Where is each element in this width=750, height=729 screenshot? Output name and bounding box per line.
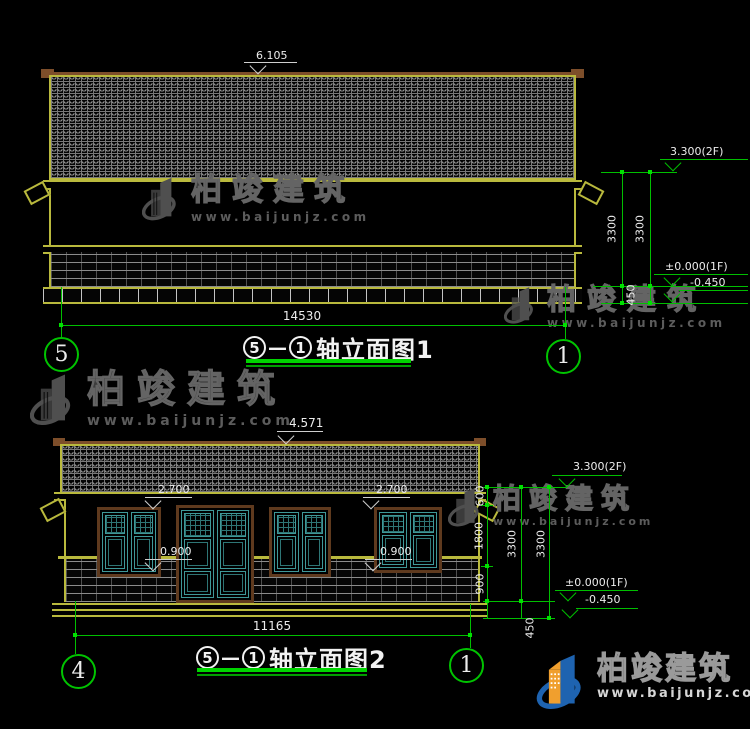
dim-tick xyxy=(648,170,652,174)
watermark-url: www.baijunjz.com xyxy=(493,515,653,528)
level-f2-2: 3.300(2F) xyxy=(573,460,626,473)
watermark-text: 柏竣建筑 www.baijunjz.com xyxy=(191,174,370,224)
brand-logo-icon xyxy=(30,370,80,434)
window-lattice xyxy=(305,515,324,534)
window-panel xyxy=(277,536,296,569)
dim-tick xyxy=(620,284,624,288)
level-sill-left: 0.900 xyxy=(160,545,192,558)
window-panel xyxy=(105,536,125,569)
brand-logo-icon xyxy=(142,174,184,228)
dim-height-upper-1: 3300 xyxy=(606,215,619,243)
level-f1-1: ±0.000(1F) xyxy=(665,260,728,273)
watermark-url: www.baijunjz.com xyxy=(191,210,370,224)
title-underline-2 xyxy=(197,668,367,672)
company-logo: 柏竣建筑 www.baijunjz.com xyxy=(536,652,750,716)
dim-tick xyxy=(73,633,77,637)
dim-tick xyxy=(519,599,523,603)
dim-extension xyxy=(565,287,566,339)
dim-height-b-2: 3300 xyxy=(535,530,548,558)
dim-height-lower-1: 3300 xyxy=(634,215,647,243)
title-axis-to-1: 1 xyxy=(289,336,312,359)
dim-window-height: 1800 xyxy=(473,522,486,550)
watermark-text: 柏竣建筑 www.baijunjz.com xyxy=(493,484,653,528)
plinth-steps-2 xyxy=(52,602,488,617)
dim-extension xyxy=(75,601,76,654)
axis-bubble-left-2: 4 xyxy=(61,654,96,689)
door-panel-lower xyxy=(220,571,247,595)
window-sash xyxy=(410,512,438,568)
title-axis-from-2: 5 xyxy=(196,646,219,669)
title-axis-from-1: 5 xyxy=(243,336,266,359)
dim-tick xyxy=(468,633,472,637)
title-underline-1 xyxy=(246,359,411,363)
window-lattice xyxy=(134,515,154,534)
level-lintel-left: 2.700 xyxy=(158,483,190,496)
level-ridge-1: 6.105 xyxy=(256,49,288,62)
dim-tick xyxy=(485,599,489,603)
dim-tick xyxy=(59,323,63,327)
window-lattice xyxy=(413,515,435,533)
level-line xyxy=(679,290,748,291)
dim-sill-height: 900 xyxy=(474,574,487,595)
title-underline-2b xyxy=(197,674,367,676)
level-lintel-right: 2.700 xyxy=(376,483,408,496)
dim-line-width-2 xyxy=(75,635,470,636)
watermark-brand: 柏竣建筑 xyxy=(493,484,653,513)
door-panel-upper xyxy=(220,539,247,569)
company-brand: 柏竣建筑 xyxy=(597,652,750,686)
window-panel xyxy=(413,535,435,565)
title-dash-2: — xyxy=(221,647,240,669)
window-panel xyxy=(305,536,324,569)
company-url: www.baijunjz.com xyxy=(597,686,750,701)
axis-bubble-right-2: 1 xyxy=(449,648,484,683)
title-underline-1b xyxy=(246,365,411,367)
dim-tick xyxy=(620,170,624,174)
dim-line xyxy=(483,487,567,488)
dim-plinth-1: 450 xyxy=(625,285,638,306)
level-f1-2: ±0.000(1F) xyxy=(565,576,628,589)
dim-extension xyxy=(470,604,471,648)
dim-height-a-2: 3300 xyxy=(506,530,519,558)
level-ridge-2: 4.571 xyxy=(289,416,323,430)
watermark-text: 柏竣建筑 www.baijunjz.com xyxy=(87,370,294,429)
window-sash xyxy=(302,512,327,572)
axis-bubble-right-1: 1 xyxy=(546,339,581,374)
company-logo-text: 柏竣建筑 www.baijunjz.com xyxy=(597,652,750,701)
dim-plinth-2: 450 xyxy=(524,618,537,639)
roof-tiles-2 xyxy=(60,444,480,494)
company-logo-icon xyxy=(536,652,592,716)
window-lattice xyxy=(277,515,296,534)
dim-tick xyxy=(547,485,551,489)
dim-width-2: 11165 xyxy=(253,619,291,633)
cad-elevation-drawing: 6.105 3300 3300 450 3.300(2F) ±0.000(1F)… xyxy=(0,0,750,729)
dim-tick xyxy=(547,616,551,620)
watermark-brand: 柏竣建筑 xyxy=(87,370,294,410)
level-f2-1: 3.300(2F) xyxy=(670,145,723,158)
dim-line xyxy=(549,487,550,618)
dim-line xyxy=(483,618,555,619)
window-sash xyxy=(102,512,128,572)
dim-width-1: 14530 xyxy=(283,309,321,323)
dim-tick xyxy=(485,564,489,568)
lattice-window-3 xyxy=(374,507,442,573)
dim-tick xyxy=(519,485,523,489)
brick-wall-1 xyxy=(49,252,576,287)
dim-extension xyxy=(61,287,62,337)
axis-bubble-left-1: 5 xyxy=(44,337,79,372)
door-panel-lower xyxy=(184,571,211,595)
level-sill-right: 0.900 xyxy=(380,545,412,558)
title-dash-1: — xyxy=(268,337,287,359)
dim-tick xyxy=(563,323,567,327)
dim-tick xyxy=(648,301,652,305)
lattice-window-2 xyxy=(269,507,331,577)
dim-line xyxy=(601,172,677,173)
watermark-brand: 柏竣建筑 xyxy=(191,174,370,207)
door-lattice xyxy=(184,513,211,537)
level-ground-1: -0.450 xyxy=(690,276,725,289)
gutter-left-2 xyxy=(40,498,67,522)
door-lattice xyxy=(220,513,247,537)
dim-line-width-1 xyxy=(61,325,566,326)
watermark-url: www.baijunjz.com xyxy=(87,413,294,429)
dim-tick xyxy=(620,301,624,305)
level-ground-2: -0.450 xyxy=(585,593,620,606)
window-lattice xyxy=(382,515,404,533)
window-sash xyxy=(274,512,299,572)
brand-logo-icon xyxy=(504,284,540,330)
watermark: 柏竣建筑 www.baijunjz.com xyxy=(30,370,294,434)
level-line xyxy=(576,608,638,609)
door-leaf xyxy=(217,510,250,598)
watermark: 柏竣建筑 www.baijunjz.com xyxy=(142,174,370,228)
watermark-url: www.baijunjz.com xyxy=(547,316,726,330)
dim-eave-to-lintel: 600 xyxy=(474,486,487,507)
title-axis-to-2: 1 xyxy=(242,646,265,669)
level-triangle-icon xyxy=(562,602,579,619)
roof-tiles-1 xyxy=(49,75,576,180)
window-lattice xyxy=(105,515,125,534)
plinth-1 xyxy=(43,287,582,304)
dim-tick xyxy=(648,284,652,288)
